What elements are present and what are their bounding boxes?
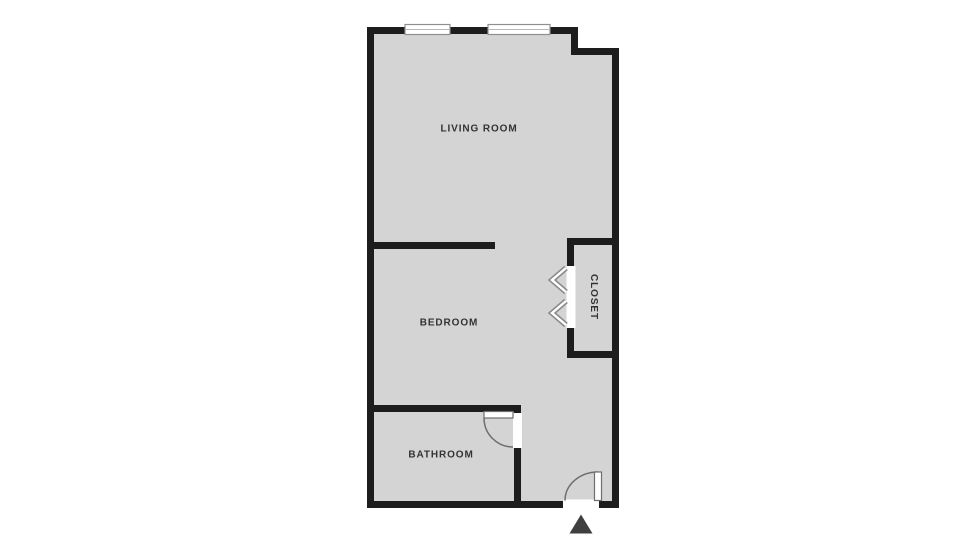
entrance-marker-icon [570,515,593,534]
floor-plan-image: LIVING ROOM BEDROOM BATHROOM CLOSET [0,0,960,540]
window-icon [488,25,550,35]
entrance-opening [563,500,599,513]
living-room-label: LIVING ROOM [440,124,517,135]
floor-plan-canvas: LIVING ROOM BEDROOM BATHROOM CLOSET [0,0,960,540]
floor-area [371,31,615,504]
bathroom-door-opening [513,413,522,448]
bathroom-label: BATHROOM [408,450,473,461]
bedroom-label: BEDROOM [420,318,479,329]
closet-label: CLOSET [588,274,599,320]
closet-opening [567,266,576,328]
window-icon [405,25,450,35]
